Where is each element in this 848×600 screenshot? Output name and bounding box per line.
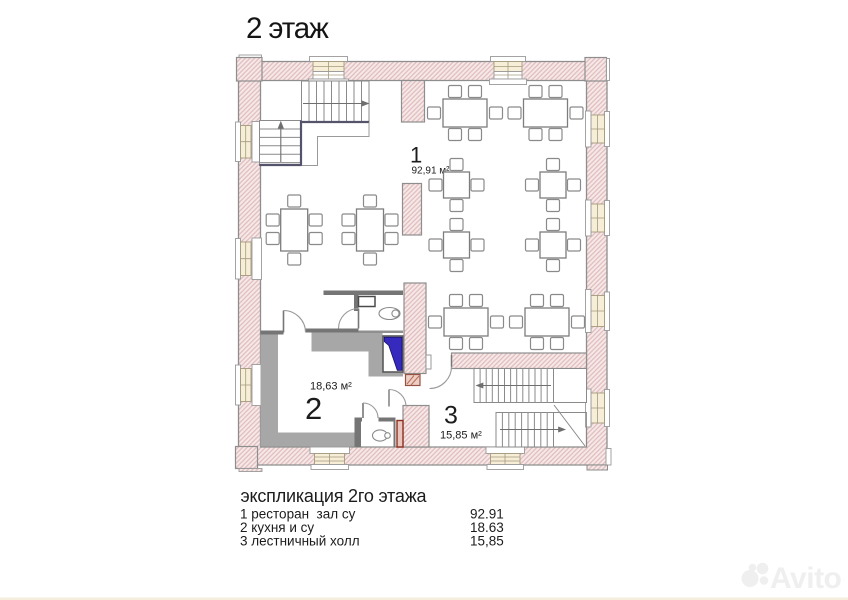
svg-text:экспликация 2го этажа: экспликация 2го этажа <box>241 486 428 506</box>
svg-text:3: 3 <box>444 402 458 430</box>
svg-text:2: 2 <box>305 391 322 426</box>
svg-text:2 этаж: 2 этаж <box>246 12 329 45</box>
svg-text:Avito: Avito <box>770 562 842 595</box>
svg-text:3 лестничный холл: 3 лестничный холл <box>240 534 360 549</box>
svg-text:15,85: 15,85 <box>470 534 504 549</box>
svg-text:18,63 м²: 18,63 м² <box>310 381 352 393</box>
svg-text:15,85 м²: 15,85 м² <box>440 430 482 442</box>
svg-text:1: 1 <box>410 143 422 168</box>
